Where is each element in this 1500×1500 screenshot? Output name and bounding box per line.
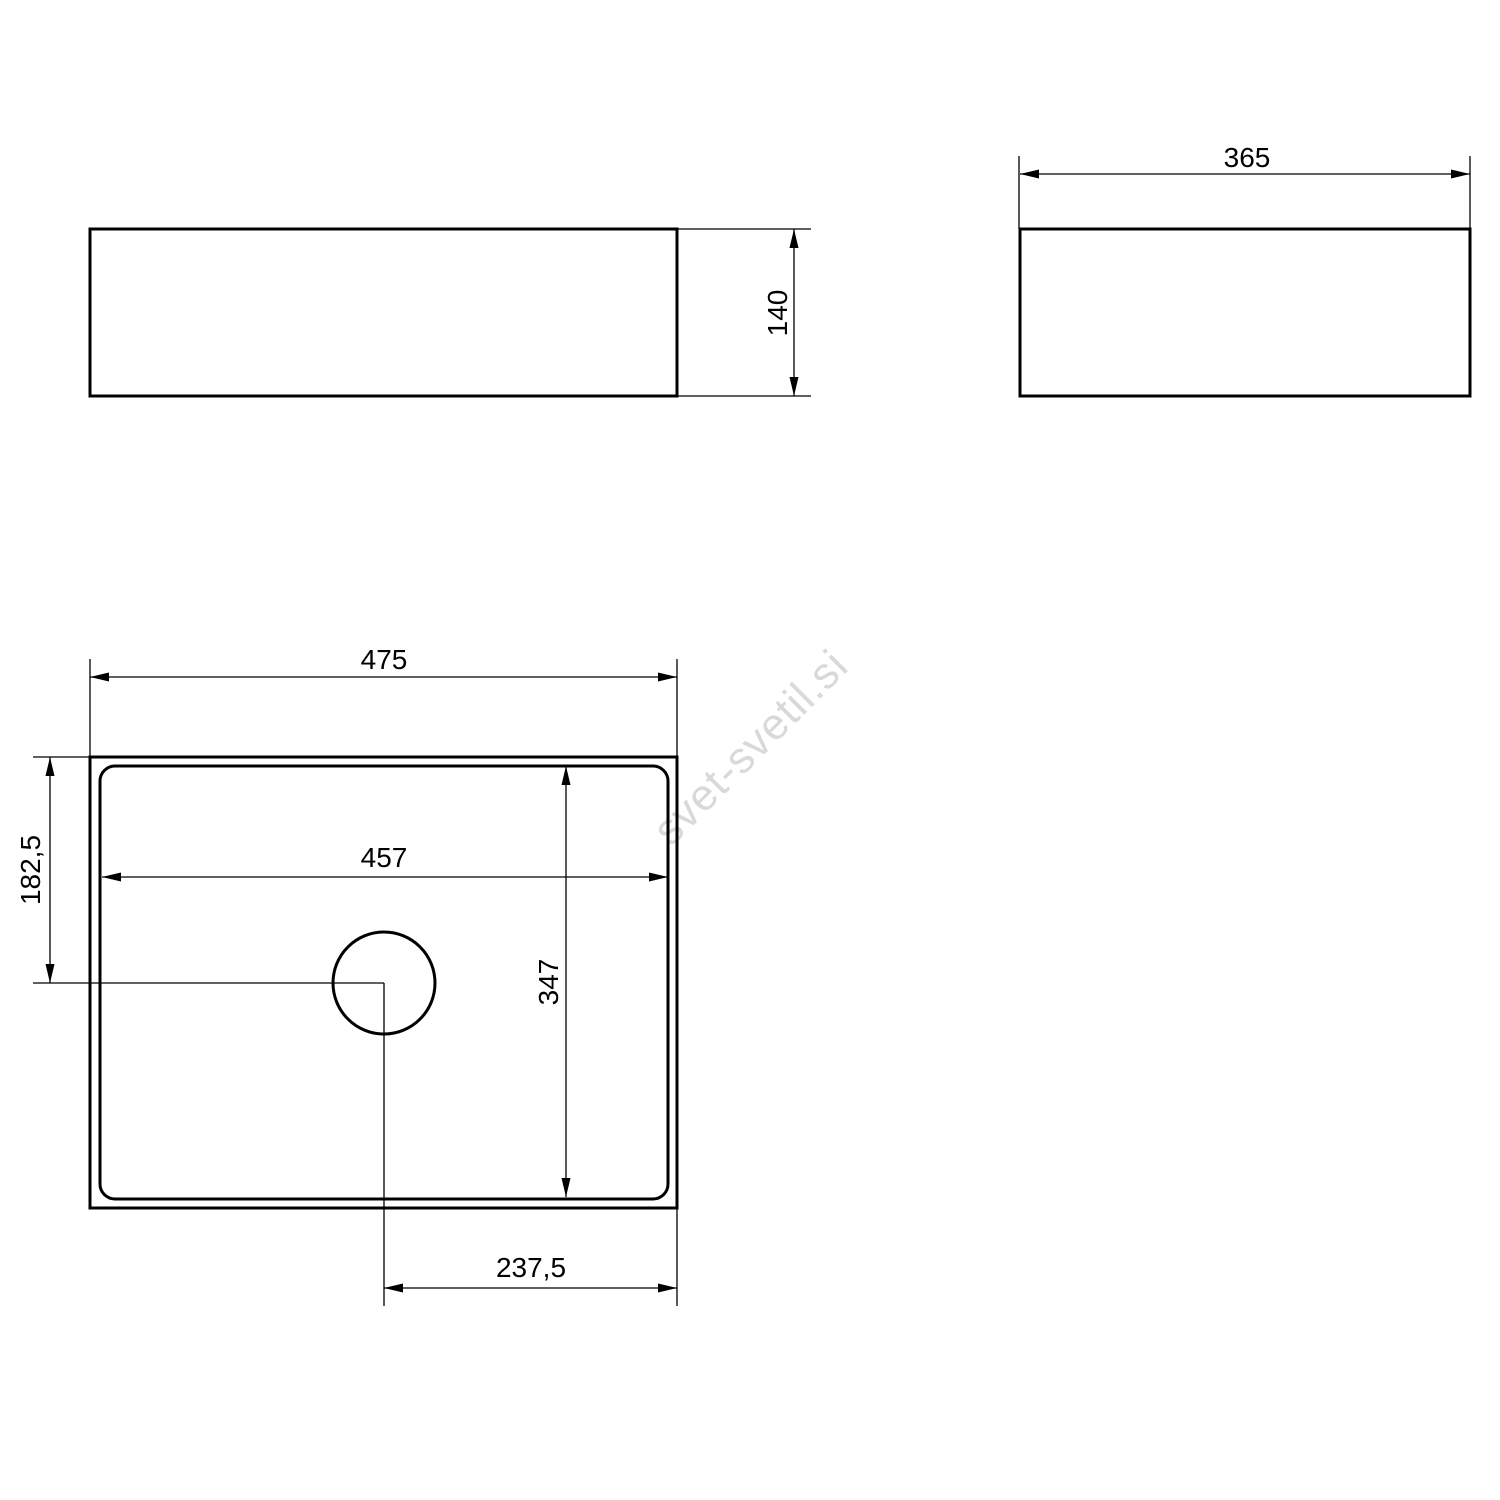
front-view (90, 229, 677, 396)
arrowhead-right-icon (658, 673, 677, 682)
arrowhead-down-icon (562, 1178, 571, 1197)
side-view-outline (1020, 229, 1470, 396)
side-view (1020, 229, 1470, 396)
dimension-value-drain-offset-top: 182,5 (15, 835, 46, 905)
arrowhead-down-icon (790, 377, 799, 396)
dimension-value-plan-inner-width: 457 (361, 842, 408, 873)
arrowhead-right-icon (658, 1284, 677, 1293)
dimension-value-front-height: 140 (762, 290, 793, 337)
dimension-plan-outer-width: 475 (90, 644, 677, 757)
dimension-drain-offset-top: 182,5 (15, 757, 90, 983)
dimension-side-width: 365 (1019, 142, 1470, 229)
dimension-value-drain-offset-right: 237,5 (496, 1252, 566, 1283)
technical-drawing-sink: svet-svetil.si 140 365 (0, 0, 1500, 1500)
arrowhead-left-icon (102, 873, 121, 882)
plan-view (33, 757, 677, 1306)
arrowhead-right-icon (649, 873, 668, 882)
arrowhead-left-icon (90, 673, 109, 682)
dimension-value-side-width: 365 (1224, 142, 1271, 173)
arrowhead-up-icon (46, 757, 55, 776)
dimension-plan-inner-width: 457 (102, 842, 668, 882)
dimension-value-plan-inner-height: 347 (533, 959, 564, 1006)
dimension-value-plan-outer-width: 475 (361, 644, 408, 675)
arrowhead-left-icon (384, 1284, 403, 1293)
dimension-drain-offset-right: 237,5 (384, 1208, 677, 1306)
arrowhead-down-icon (46, 964, 55, 983)
front-view-outline (90, 229, 677, 396)
arrowhead-left-icon (1020, 170, 1039, 179)
arrowhead-up-icon (562, 766, 571, 785)
dimension-plan-inner-height: 347 (533, 766, 571, 1197)
arrowhead-up-icon (790, 229, 799, 248)
drawing-canvas: svet-svetil.si 140 365 (0, 0, 1500, 1500)
arrowhead-right-icon (1451, 170, 1470, 179)
dimension-front-height: 140 (677, 229, 811, 396)
